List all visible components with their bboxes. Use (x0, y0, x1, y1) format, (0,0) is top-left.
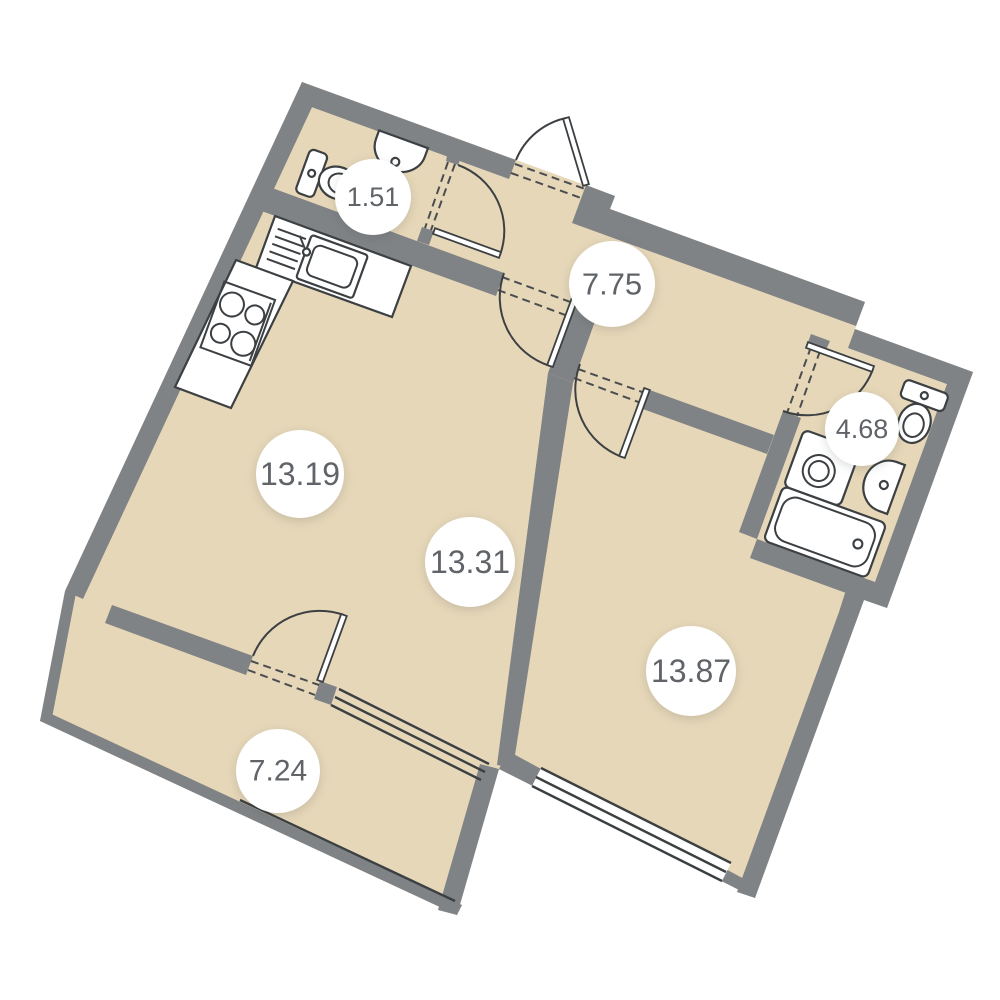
entry-door-leaf (563, 117, 589, 186)
sink-faucet (302, 248, 311, 257)
room-label-balcony: 7.24 (236, 729, 320, 813)
room-label-living-room: 13.31 (425, 517, 515, 607)
room-area-value: 13.87 (651, 653, 731, 689)
entry-door-arc (516, 118, 566, 160)
room-area-value: 13.31 (430, 544, 510, 580)
room-label-bathroom: 4.68 (825, 392, 899, 466)
basin2-drain (879, 480, 889, 490)
room-area-value: 13.19 (260, 456, 340, 492)
room-label-kitchen: 13.19 (256, 430, 344, 518)
room-area-value: 7.24 (249, 755, 307, 788)
room-area-value: 1.51 (347, 182, 400, 212)
toilet-button (307, 169, 316, 178)
floor-plan-canvas: 1.517.754.6813.1913.3113.877.24 (0, 0, 1000, 1000)
room-area-value: 4.68 (836, 414, 889, 444)
room-label-wc-small: 1.51 (335, 159, 411, 235)
room-label-hallway: 7.75 (569, 241, 655, 327)
toilet2-button (920, 391, 929, 400)
room-label-bedroom: 13.87 (646, 626, 736, 716)
room-area-value: 7.75 (582, 267, 642, 302)
floor-plan-page: 1.517.754.6813.1913.3113.877.24 (0, 0, 1000, 1000)
